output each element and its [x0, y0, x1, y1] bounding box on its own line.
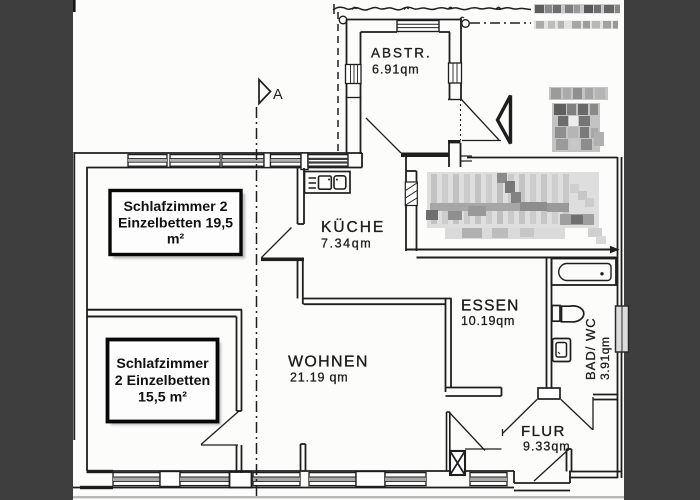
svg-text:10.19qm: 10.19qm — [461, 314, 515, 328]
svg-text:KÜCHE: KÜCHE — [321, 218, 385, 236]
svg-text:A: A — [273, 87, 283, 103]
svg-text:m²: m² — [167, 232, 185, 248]
svg-text:ABSTR.: ABSTR. — [371, 46, 432, 61]
svg-text:BAD/ WC: BAD/ WC — [583, 317, 598, 380]
svg-text:3.91qm: 3.91qm — [598, 336, 612, 380]
svg-text:7.34qm: 7.34qm — [321, 237, 372, 251]
svg-text:9.33qm: 9.33qm — [523, 440, 571, 454]
svg-text:2 Einzelbetten: 2 Einzelbetten — [115, 373, 210, 389]
svg-text:WOHNEN: WOHNEN — [288, 354, 369, 371]
svg-text:Schlafzimmer: Schlafzimmer — [116, 356, 209, 372]
svg-text:21.19 qm: 21.19 qm — [290, 371, 349, 385]
svg-text:Schlafzimmer 2: Schlafzimmer 2 — [123, 199, 227, 215]
svg-text:ESSEN: ESSEN — [461, 298, 520, 315]
svg-text:Einzelbetten 19,5: Einzelbetten 19,5 — [118, 216, 233, 232]
svg-text:6.91qm: 6.91qm — [372, 63, 420, 77]
svg-text:15,5 m²: 15,5 m² — [138, 390, 187, 406]
svg-text:FLUR: FLUR — [521, 423, 566, 440]
